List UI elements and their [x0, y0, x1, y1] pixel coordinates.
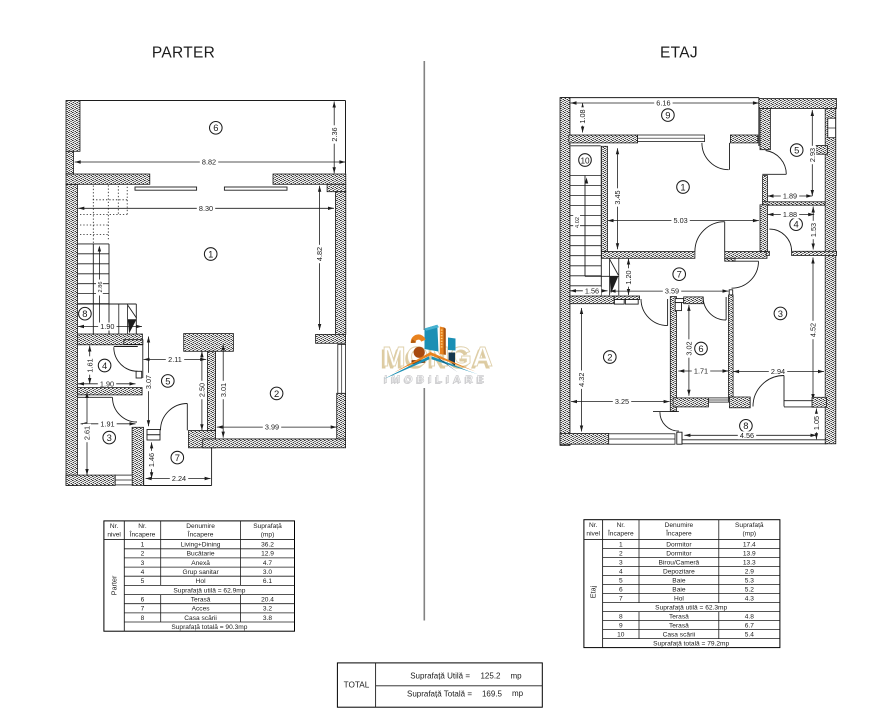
svg-text:Depozitare: Depozitare: [663, 568, 695, 575]
svg-text:36.2: 36.2: [261, 542, 274, 549]
svg-text:Hol: Hol: [196, 578, 206, 585]
svg-text:1.88: 1.88: [783, 210, 797, 219]
svg-text:Bucătarie: Bucătarie: [187, 551, 215, 558]
svg-text:Suprafață Totală =: Suprafață Totală =: [407, 690, 472, 699]
svg-text:6: 6: [619, 586, 623, 593]
svg-text:4.82: 4.82: [315, 247, 324, 261]
svg-text:ETAJ: ETAJ: [660, 45, 698, 62]
svg-text:mp: mp: [512, 689, 524, 698]
svg-text:6.7: 6.7: [745, 622, 754, 629]
svg-text:6.1: 6.1: [263, 578, 272, 585]
svg-text:1.90: 1.90: [100, 322, 114, 331]
svg-text:1.90: 1.90: [100, 379, 114, 388]
svg-text:1.53: 1.53: [809, 223, 818, 237]
svg-text:Denumire: Denumire: [665, 522, 694, 529]
svg-text:5.03: 5.03: [673, 216, 687, 225]
svg-text:3.02: 3.02: [685, 341, 694, 355]
svg-text:3.0: 3.0: [263, 569, 272, 576]
svg-text:125.2: 125.2: [480, 672, 501, 681]
svg-text:7: 7: [175, 452, 180, 463]
svg-text:8: 8: [619, 613, 623, 620]
svg-text:10: 10: [580, 156, 590, 165]
svg-text:17.4: 17.4: [743, 541, 756, 548]
svg-text:1.08: 1.08: [578, 109, 587, 123]
svg-text:4: 4: [141, 569, 145, 576]
svg-text:Suprafață utilă = 62.9mp: Suprafață utilă = 62.9mp: [173, 587, 245, 594]
svg-text:9: 9: [665, 110, 670, 121]
svg-text:6: 6: [698, 343, 703, 354]
svg-text:Suprafață totală = 90.3mp: Suprafață totală = 90.3mp: [171, 624, 247, 631]
svg-text:Birou/Cameră: Birou/Cameră: [659, 559, 700, 566]
svg-text:2.61: 2.61: [83, 426, 92, 440]
svg-text:2.93: 2.93: [808, 148, 817, 162]
svg-text:1.05: 1.05: [812, 416, 821, 430]
svg-text:Living+Dining: Living+Dining: [181, 542, 221, 549]
svg-text:5.3: 5.3: [745, 577, 754, 584]
svg-text:9: 9: [619, 622, 623, 629]
svg-text:4: 4: [102, 360, 107, 371]
svg-text:2.50: 2.50: [198, 383, 207, 397]
svg-text:2: 2: [607, 351, 612, 362]
svg-text:Încapere: Încapere: [665, 529, 692, 538]
svg-text:Suprafață Utilă =: Suprafață Utilă =: [410, 672, 470, 681]
svg-text:Hol: Hol: [674, 595, 684, 602]
svg-text:Dormitor: Dormitor: [666, 550, 692, 557]
svg-text:4.7: 4.7: [263, 560, 272, 567]
svg-text:Suprafață: Suprafață: [253, 523, 282, 530]
svg-text:Nr.: Nr.: [110, 523, 119, 530]
svg-text:2.86: 2.86: [98, 282, 104, 293]
svg-text:nivel: nivel: [586, 531, 600, 538]
svg-text:1.20: 1.20: [624, 270, 633, 284]
svg-text:IMOBILIARE: IMOBILIARE: [384, 373, 488, 385]
svg-text:5.4: 5.4: [745, 631, 754, 638]
svg-text:nivel: nivel: [107, 532, 121, 539]
svg-text:Parter: Parter: [109, 575, 118, 595]
svg-text:7: 7: [141, 606, 145, 613]
svg-text:Nr.: Nr.: [589, 522, 598, 529]
svg-text:1: 1: [141, 542, 145, 549]
svg-text:1: 1: [680, 181, 685, 192]
svg-text:8: 8: [82, 308, 87, 319]
svg-text:Etaj: Etaj: [589, 585, 598, 598]
svg-text:2.94: 2.94: [771, 367, 785, 376]
svg-text:2.9: 2.9: [745, 568, 754, 575]
svg-text:Nr.: Nr.: [138, 523, 147, 530]
svg-text:Terasă: Terasă: [669, 622, 689, 629]
svg-text:2: 2: [619, 550, 623, 557]
svg-text:2.24: 2.24: [172, 474, 186, 483]
svg-text:Casa scării: Casa scării: [184, 615, 217, 622]
svg-text:Acces: Acces: [192, 606, 211, 613]
svg-text:3.07: 3.07: [144, 375, 153, 389]
svg-text:2.11: 2.11: [168, 355, 182, 364]
svg-text:5: 5: [165, 375, 170, 386]
svg-text:8.82: 8.82: [202, 158, 216, 167]
svg-text:(mp): (mp): [261, 532, 275, 539]
svg-text:3: 3: [778, 308, 783, 319]
svg-text:12.9: 12.9: [261, 551, 274, 558]
svg-text:3.25: 3.25: [615, 397, 629, 406]
svg-text:2.36: 2.36: [330, 127, 339, 141]
svg-text:3.2: 3.2: [263, 606, 272, 613]
svg-text:Anexă: Anexă: [191, 560, 210, 567]
svg-text:1.91: 1.91: [100, 419, 114, 428]
svg-text:3: 3: [107, 432, 112, 443]
svg-text:3.8: 3.8: [263, 615, 272, 622]
svg-text:6: 6: [141, 596, 145, 603]
svg-text:3: 3: [141, 560, 145, 567]
svg-text:1.61: 1.61: [85, 358, 94, 372]
svg-text:169.5: 169.5: [482, 690, 503, 699]
svg-text:Nr.: Nr.: [617, 522, 626, 529]
svg-text:4.3: 4.3: [745, 595, 754, 602]
svg-text:mp: mp: [510, 672, 522, 681]
svg-text:Grup sanitar: Grup sanitar: [182, 569, 219, 576]
svg-text:Suprafață utilă = 62.3mp: Suprafață utilă = 62.3mp: [655, 604, 727, 611]
svg-text:3.59: 3.59: [665, 287, 679, 296]
svg-text:5.2: 5.2: [745, 586, 754, 593]
svg-text:Denumire: Denumire: [186, 523, 215, 530]
svg-text:1: 1: [208, 248, 213, 259]
svg-text:13.9: 13.9: [743, 550, 756, 557]
svg-text:8: 8: [141, 615, 145, 622]
svg-text:7: 7: [677, 269, 682, 280]
svg-text:Terasă: Terasă: [669, 613, 689, 620]
svg-text:Baie: Baie: [672, 577, 686, 584]
svg-text:TOTAL: TOTAL: [344, 680, 370, 689]
svg-text:8: 8: [743, 420, 748, 431]
svg-text:2: 2: [141, 551, 145, 558]
svg-text:Încapere: Încapere: [607, 529, 634, 538]
svg-text:5: 5: [794, 145, 799, 156]
svg-text:4.8: 4.8: [745, 613, 754, 620]
svg-text:4: 4: [793, 219, 798, 230]
svg-text:4.32: 4.32: [577, 373, 586, 387]
svg-text:8.30: 8.30: [199, 204, 213, 213]
svg-text:Baie: Baie: [672, 586, 686, 593]
svg-text:(mp): (mp): [743, 531, 757, 538]
svg-text:4.02: 4.02: [575, 217, 581, 228]
svg-text:4.56: 4.56: [740, 431, 754, 440]
svg-text:6.16: 6.16: [656, 99, 670, 108]
svg-text:Încapere: Încapere: [129, 530, 156, 539]
svg-text:Dormitor: Dormitor: [666, 541, 692, 548]
svg-text:3.45: 3.45: [613, 190, 622, 204]
svg-text:1.56: 1.56: [585, 286, 599, 295]
svg-text:20.4: 20.4: [261, 596, 274, 603]
svg-text:7: 7: [619, 595, 623, 602]
svg-text:3.01: 3.01: [219, 383, 228, 397]
svg-text:1.46: 1.46: [147, 453, 156, 467]
svg-text:PARTER: PARTER: [152, 45, 215, 62]
svg-text:6: 6: [213, 122, 218, 133]
svg-text:5: 5: [141, 578, 145, 585]
svg-text:3: 3: [619, 559, 623, 566]
svg-text:4: 4: [619, 568, 623, 575]
svg-text:4.52: 4.52: [809, 323, 818, 337]
svg-text:13.3: 13.3: [743, 559, 756, 566]
svg-text:Încapere: Încapere: [187, 530, 214, 539]
svg-text:10: 10: [617, 631, 625, 638]
svg-text:5: 5: [619, 577, 623, 584]
svg-text:Suprafață totală = 79.2mp: Suprafață totală = 79.2mp: [653, 640, 729, 647]
svg-text:2: 2: [274, 388, 279, 399]
svg-text:3.99: 3.99: [265, 423, 279, 432]
svg-text:Casa scării: Casa scării: [663, 631, 696, 638]
svg-text:1: 1: [619, 541, 623, 548]
svg-text:1.89: 1.89: [783, 192, 797, 201]
svg-text:1.71: 1.71: [694, 367, 708, 376]
svg-text:Suprafață: Suprafață: [735, 522, 764, 529]
svg-text:Terasă: Terasă: [191, 596, 211, 603]
